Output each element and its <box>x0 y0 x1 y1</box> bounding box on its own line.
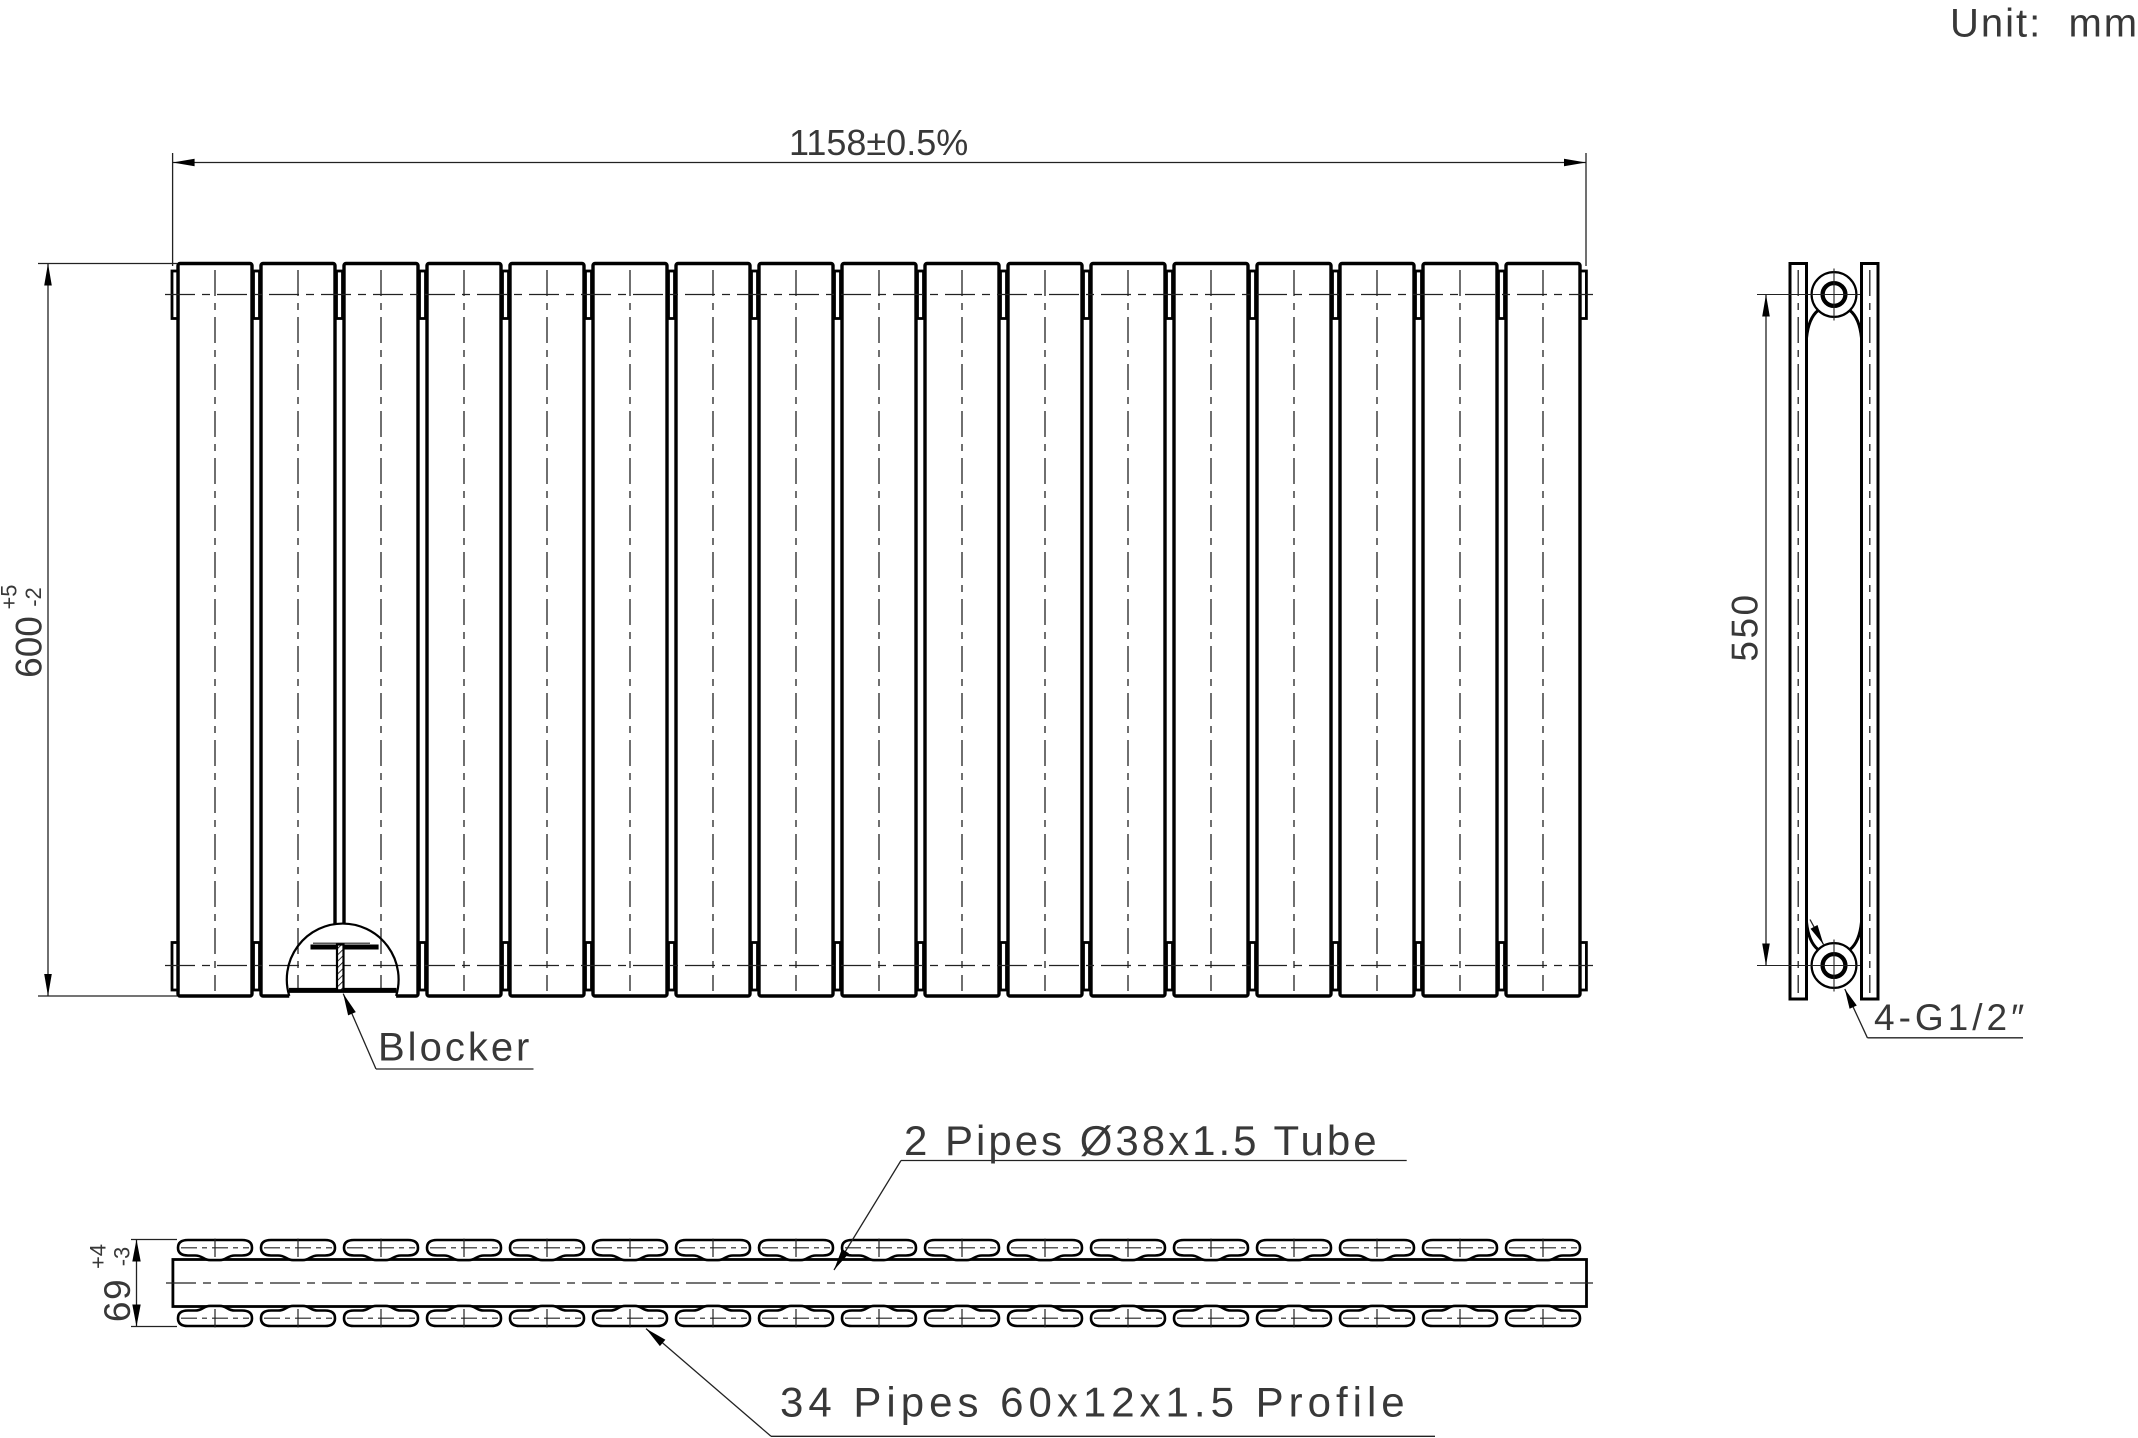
svg-text:550: 550 <box>1725 592 1766 661</box>
svg-text:69: 69 <box>97 1278 138 1322</box>
svg-text:34 Pipes 60x12x1.5 Profile: 34 Pipes 60x12x1.5 Profile <box>780 1379 1410 1426</box>
svg-text:+4: +4 <box>86 1244 111 1269</box>
svg-text:600: 600 <box>9 616 50 678</box>
svg-text:Blocker: Blocker <box>378 1026 532 1070</box>
svg-text:Unit: mm: Unit: mm <box>1950 2 2138 46</box>
svg-text:2 Pipes Ø38x1.5 Tube: 2 Pipes Ø38x1.5 Tube <box>904 1117 1380 1164</box>
svg-text:1158±0.5%: 1158±0.5% <box>789 122 968 163</box>
svg-text:4-G1/2″: 4-G1/2″ <box>1874 997 2028 1038</box>
svg-text:+5: +5 <box>0 584 22 609</box>
svg-text:-2: -2 <box>21 587 46 607</box>
svg-text:-3: -3 <box>110 1247 135 1267</box>
